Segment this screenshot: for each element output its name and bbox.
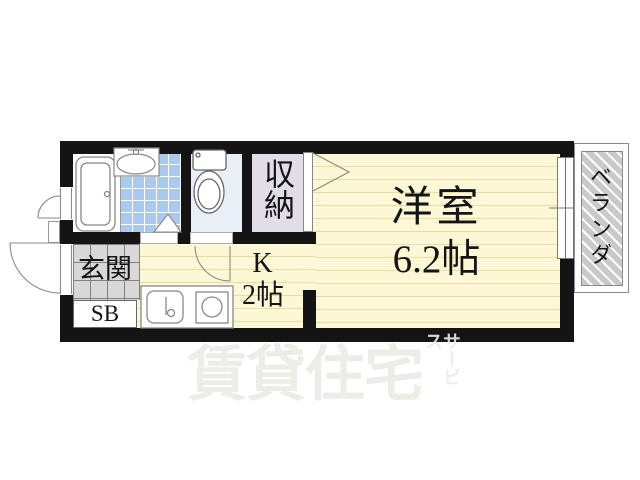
kitchen-size: 2帖: [228, 281, 298, 310]
washroom-folding-door-icon: [154, 214, 181, 232]
bathtub-icon: [76, 157, 115, 231]
washbasin-icon: [114, 148, 159, 176]
toilet-door-arc-icon: [195, 246, 230, 281]
western-room-size: 6.2帖: [313, 240, 560, 281]
kitchen-label: K: [235, 249, 290, 278]
closet-label: 収納: [261, 158, 292, 236]
toilet-icon: [193, 150, 226, 213]
kitchen-sink-icon: [147, 291, 183, 323]
western-room-label: 洋室: [313, 186, 560, 230]
veranda-label: ベランダ: [588, 165, 610, 289]
kitchen-counter: [141, 286, 233, 328]
entrance-door-arc-icon: [10, 243, 60, 293]
floor-plan: 洋室 6.2帖 K 2帖 収納 玄関 SB ベランダ 賃貸住宅 サービス: [0, 0, 640, 480]
entrance-label: 玄関: [70, 255, 140, 283]
shoe-box-label: SB: [73, 302, 137, 326]
bath-door-arc-icon: [38, 196, 60, 218]
